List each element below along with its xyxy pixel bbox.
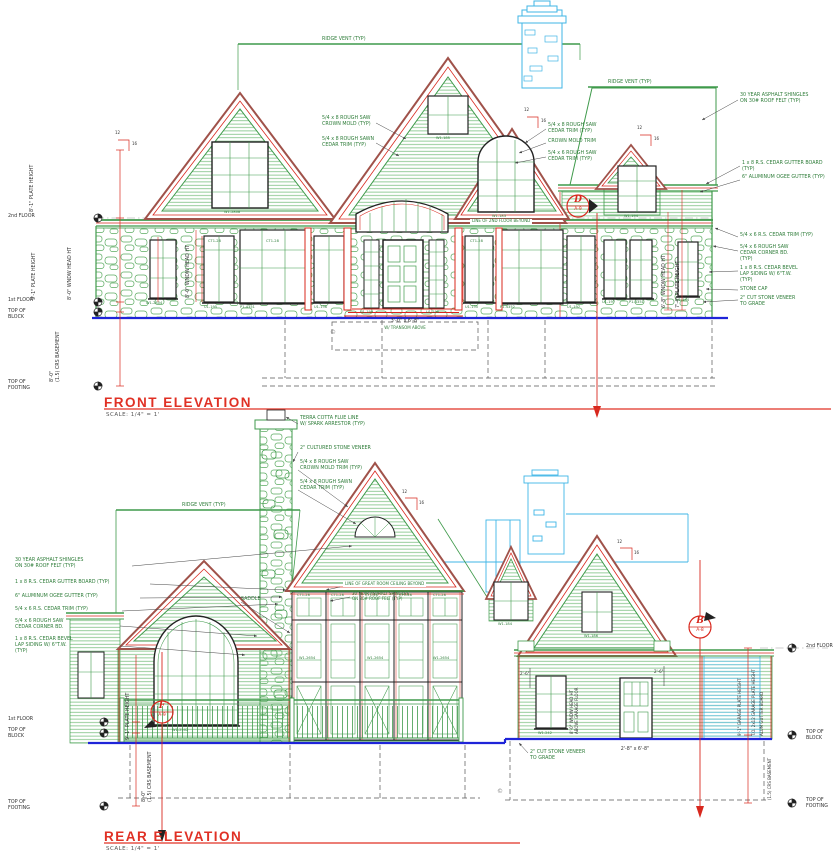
rear-note-cultured-stone: 2" CULTURED STONE VENEER: [300, 446, 371, 452]
front-window-label: U1-197: [567, 305, 580, 309]
front-note-cedar-trim: 5/4 x 6 R.S. CEDAR TRIM (TYP): [740, 233, 813, 239]
section-marker-f-sheet: A-9: [155, 713, 169, 718]
rear-note-gutter-board: 1 x 8 R.S. CEDAR GUTTER BOARD (TYP): [15, 580, 135, 586]
rear-note-shingles: 30 YEAR ASPHALT SHINGLES ON 30# ROOF FEL…: [15, 558, 83, 570]
section-marker-d-letter: D: [571, 195, 585, 205]
front-ridge-vent-label: RIDGE VENT (TYP): [320, 37, 368, 43]
rear-grid-label-mid: W1-2654: [367, 656, 383, 660]
pitch-rise: 12: [637, 126, 642, 131]
rear-2nd-floor-label: 2nd FLOOR: [806, 644, 833, 650]
section-marker-b-sheet: A-8: [693, 628, 707, 633]
rear-note-cedar-trim-2: 5/4 x 6 R.S. CEDAR TRIM (TYP): [15, 607, 88, 613]
front-dim-wndw-head: 8'-0" WNDW HEAD HT: [68, 247, 74, 300]
front-window-label: W1-2804: [146, 301, 162, 305]
front-dim-basement: 8'-0" (1.5) CRS BASEMENT: [50, 332, 62, 383]
front-dim-wndw-head-2: 8'-0" WNDW HEAD HT: [186, 245, 192, 298]
rear-elevation-drawing: [66, 410, 828, 843]
rear-note-terra-cotta: TERRA COTTA FLUE LINE W/ SPARK ARRESTOR …: [300, 416, 365, 428]
rear-dim-crs-basement: (1.5) CRS BASEMENT: [768, 758, 773, 800]
front-window-label: W1-2808: [224, 210, 240, 214]
rear-copyright: ©: [497, 788, 503, 795]
elevation-sheet: RIDGE VENT (TYP) RIDGE VENT (TYP) 30 YEA…: [0, 0, 836, 860]
pitch-run: 16: [419, 501, 424, 506]
rear-top-of-block-label: TOP OF BLOCK: [806, 730, 824, 742]
front-window-label: U1-199: [360, 310, 373, 314]
rear-grid-label-mid: W1-2654: [299, 656, 315, 660]
front-elevation-title: FRONT ELEVATION: [104, 395, 252, 410]
rear-left-stub: [66, 613, 124, 743]
rear-elevation-title: REAR ELEVATION: [104, 829, 242, 844]
front-1st-floor-label: 1st FLOOR: [8, 298, 33, 304]
rear-note-lap-siding: 1 x 8 R.S. CEDAR BEVEL LAP SIDING W/ 6"T…: [15, 637, 73, 654]
front-dim-plate-upper: 8'-1" PLATE HEIGHT: [30, 165, 36, 212]
pitch-rise: 12: [115, 131, 120, 136]
front-window-label: W1-185: [436, 136, 450, 140]
front-dim-dormer-head: 6'-8" WNDW HEAD HT: [662, 255, 668, 308]
front-note-stone-veneer: 2" CUT STONE VENEER TO GRADE: [740, 296, 795, 308]
rear-grid-label: CT1-28: [331, 593, 344, 597]
pitch-run: 16: [634, 551, 639, 556]
rear-grid-label: CT1-28: [365, 593, 378, 597]
rear-dim-plate-main: 9'-1" PLATE HEIGHT: [126, 693, 132, 740]
front-window-label: U1-196: [314, 305, 327, 309]
front-window-label: U1-198: [426, 310, 439, 314]
front-transom-label: CT1-28: [470, 239, 483, 243]
front-window-label: P1-4351: [240, 305, 255, 309]
front-window-label: P1-4351: [629, 300, 644, 304]
rear-window-label: W1-186: [584, 634, 598, 638]
rear-1st-floor-label: 1st FLOOR: [8, 717, 33, 723]
front-dim-plate-main: 9'-1" PLATE HEIGHT: [32, 253, 38, 300]
rear-note-crown-mold: 5/4 x 8 ROUGH SAW CROWN MOLD TRIM (TYP): [300, 460, 362, 472]
front-window-label: U1-195: [204, 305, 217, 309]
rear-top-of-footing-label-2: TOP OF FOOTING: [8, 800, 30, 812]
section-marker-f-letter: F: [155, 701, 169, 711]
front-note-rough-saw: 5/4 x 8 ROUGH SAW CEDAR TRIM (TYP): [548, 123, 597, 135]
front-elevation-scale: SCALE: 1/4" = 1': [106, 412, 160, 418]
pitch-rise: 12: [402, 490, 407, 495]
rear-window-label: W1-2502: [172, 728, 188, 732]
front-window-label: W1-183: [492, 214, 506, 218]
front-note-ogee-gutter: 6" ALUMINUM OGEE GUTTER (TYP): [742, 175, 825, 181]
rear-dim-garage-to: T.O. 2x12 GARAGE PLATE HEIGHT: [752, 669, 757, 736]
pitch-rise: 12: [524, 108, 529, 113]
front-copyright: ©: [330, 329, 336, 336]
rear-dim-garage-head: 8'-0" WNDW HEAD HT ABOVE GARAGE FLOOR: [570, 687, 580, 734]
section-marker-d-sheet: A-9: [571, 207, 585, 212]
front-window-label: U1-197: [602, 300, 615, 304]
front-note-crown-mold-trim: CROWN MOLD TRIM: [548, 139, 596, 145]
front-window-label: U1-194: [676, 298, 689, 302]
front-2nd-floor-label: 2nd FLOOR: [8, 214, 35, 220]
front-door-dim-sub: W/ TRANSOM ABOVE: [370, 326, 440, 331]
rear-note-stone-veneer: 2" CUT STONE VENEER TO GRADE: [530, 750, 585, 762]
front-top-of-footing-label: TOP OF FOOTING: [8, 380, 30, 392]
front-note-rough-saw-2: 5/4 x 6 ROUGH SAW CEDAR TRIM (TYP): [548, 151, 597, 163]
rear-window-label: W1-242: [538, 731, 552, 735]
rear-note-great-room: LINE OF GREAT ROOM CEILING BEYOND: [343, 582, 426, 587]
rear-garage: [514, 641, 774, 739]
rear-note-cedar-trim: 5/4 x 8 ROUGH SAWN CEDAR TRIM (TYP): [300, 480, 352, 492]
front-ridge-vent-label-2: RIDGE VENT (TYP): [606, 80, 654, 86]
front-note-shingles: 30 YEAR ASPHALT SHINGLES ON 30# ROOF FEL…: [740, 93, 808, 105]
front-note-crown-mold: 5/4 x 8 ROUGH SAW CROWN MOLD (TYP): [322, 116, 371, 128]
rear-note-corner-bd: 5/4 x 6 ROUGH SAW CEDAR CORNER BD.: [15, 619, 64, 631]
rear-grid-label: CT1-28: [399, 593, 412, 597]
rear-dim-gutter-board: ALUM GUTTER BOARD: [760, 692, 765, 736]
rear-grid-label-mid: W1-2654: [433, 656, 449, 660]
rear-top-of-footing-label: TOP OF FOOTING: [806, 798, 828, 810]
pitch-rise: 12: [617, 540, 622, 545]
rear-window-label: W1-184: [498, 622, 512, 626]
front-transom-label: CT1-28: [208, 239, 221, 243]
rear-dim-garage-plate: 9'-1" GARAGE PLATE HEIGHT: [738, 679, 743, 736]
front-door-dim: 3'-0" x 6'-8": [370, 319, 440, 325]
front-note-lap-siding: 1 x 8 R.S. CEDAR BEVEL LAP SIDING W/ 6"T…: [740, 266, 798, 283]
rear-note-ogee-gutter: 6" ALUMINUM OGEE GUTTER (TYP): [15, 594, 98, 600]
front-note-2nd-floor-line: LINE OF 2ND FLOOR BEYOND: [470, 219, 532, 224]
rear-dim-eave-2: 2'-6": [654, 670, 663, 675]
rear-dim-eave: 2'-6": [520, 672, 529, 677]
front-elevation-drawing: [92, 1, 831, 418]
front-note-corner-bd: 5/4 x 6 ROUGH SAW CEDAR CORNER BD. (TYP): [740, 245, 789, 262]
rear-top-of-block-label-2: TOP OF BLOCK: [8, 728, 26, 740]
front-window-label: W1-194: [624, 214, 638, 218]
rear-dim-basement: 8'-0" (1.5) CRS BASEMENT: [142, 752, 154, 803]
front-note-cedar-trim-gable: 5/4 x 8 ROUGH SAWN CEDAR TRIM (TYP): [322, 137, 374, 149]
section-marker-b-letter: B: [693, 616, 707, 626]
front-transom-label: CT1-28: [266, 239, 279, 243]
rear-foundation: [118, 741, 768, 800]
rear-dormer: [486, 547, 536, 621]
rear-door-dim: 2'-8" x 6'-8": [600, 747, 670, 753]
front-window-label: P1-4352: [500, 305, 515, 309]
front-window-label: U1-195: [465, 305, 478, 309]
pitch-run: 16: [654, 137, 659, 142]
pitch-run: 16: [132, 142, 137, 147]
front-note-stone-cap: STONE CAP: [740, 287, 767, 293]
rear-grid-label: CT1-28: [297, 593, 310, 597]
front-note-gutter-board: 1 x 8 R.S. CEDAR GUTTER BOARD (TYP): [742, 161, 834, 173]
front-top-of-block-label: TOP OF BLOCK: [8, 309, 26, 321]
rear-ridge-vent-label: RIDGE VENT (TYP): [180, 503, 228, 509]
pitch-run: 16: [541, 119, 546, 124]
front-chimney: [518, 1, 566, 88]
rear-elevation-scale: SCALE: 1/4" = 1': [106, 846, 160, 852]
rear-grid-label: CT1-28: [433, 593, 446, 597]
rear-note-saddle: SADDLE: [241, 597, 261, 603]
